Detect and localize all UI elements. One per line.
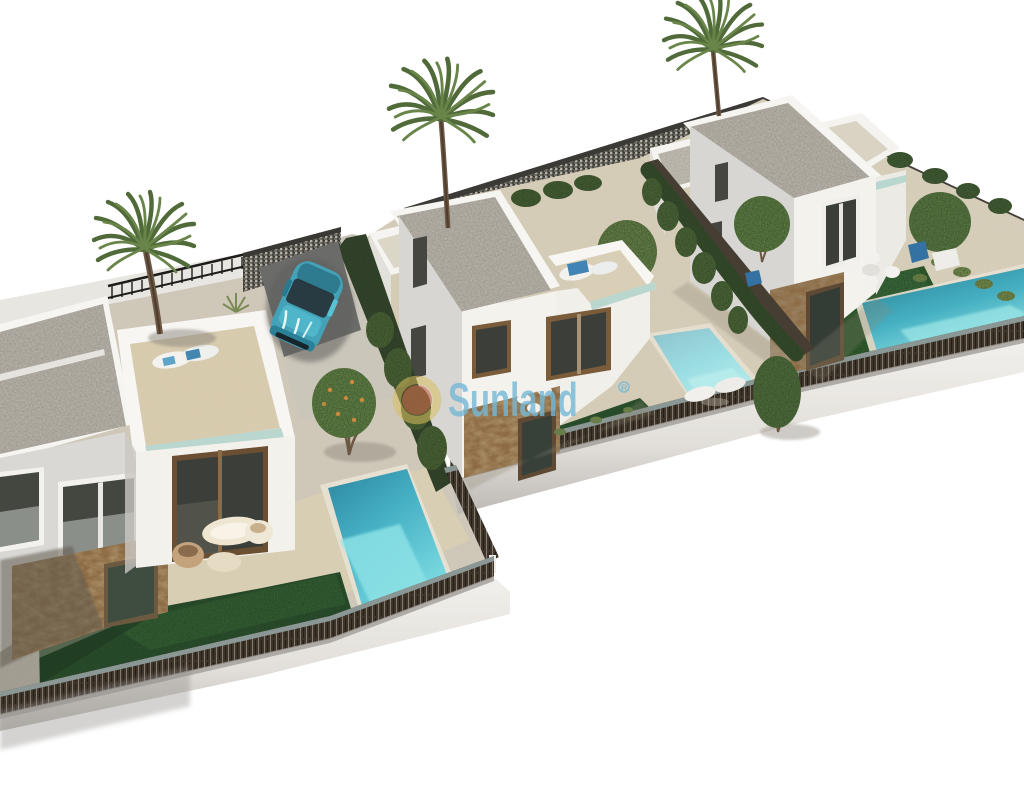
svg-text:Sunland: Sunland xyxy=(448,373,578,426)
svg-text:R: R xyxy=(621,383,628,393)
